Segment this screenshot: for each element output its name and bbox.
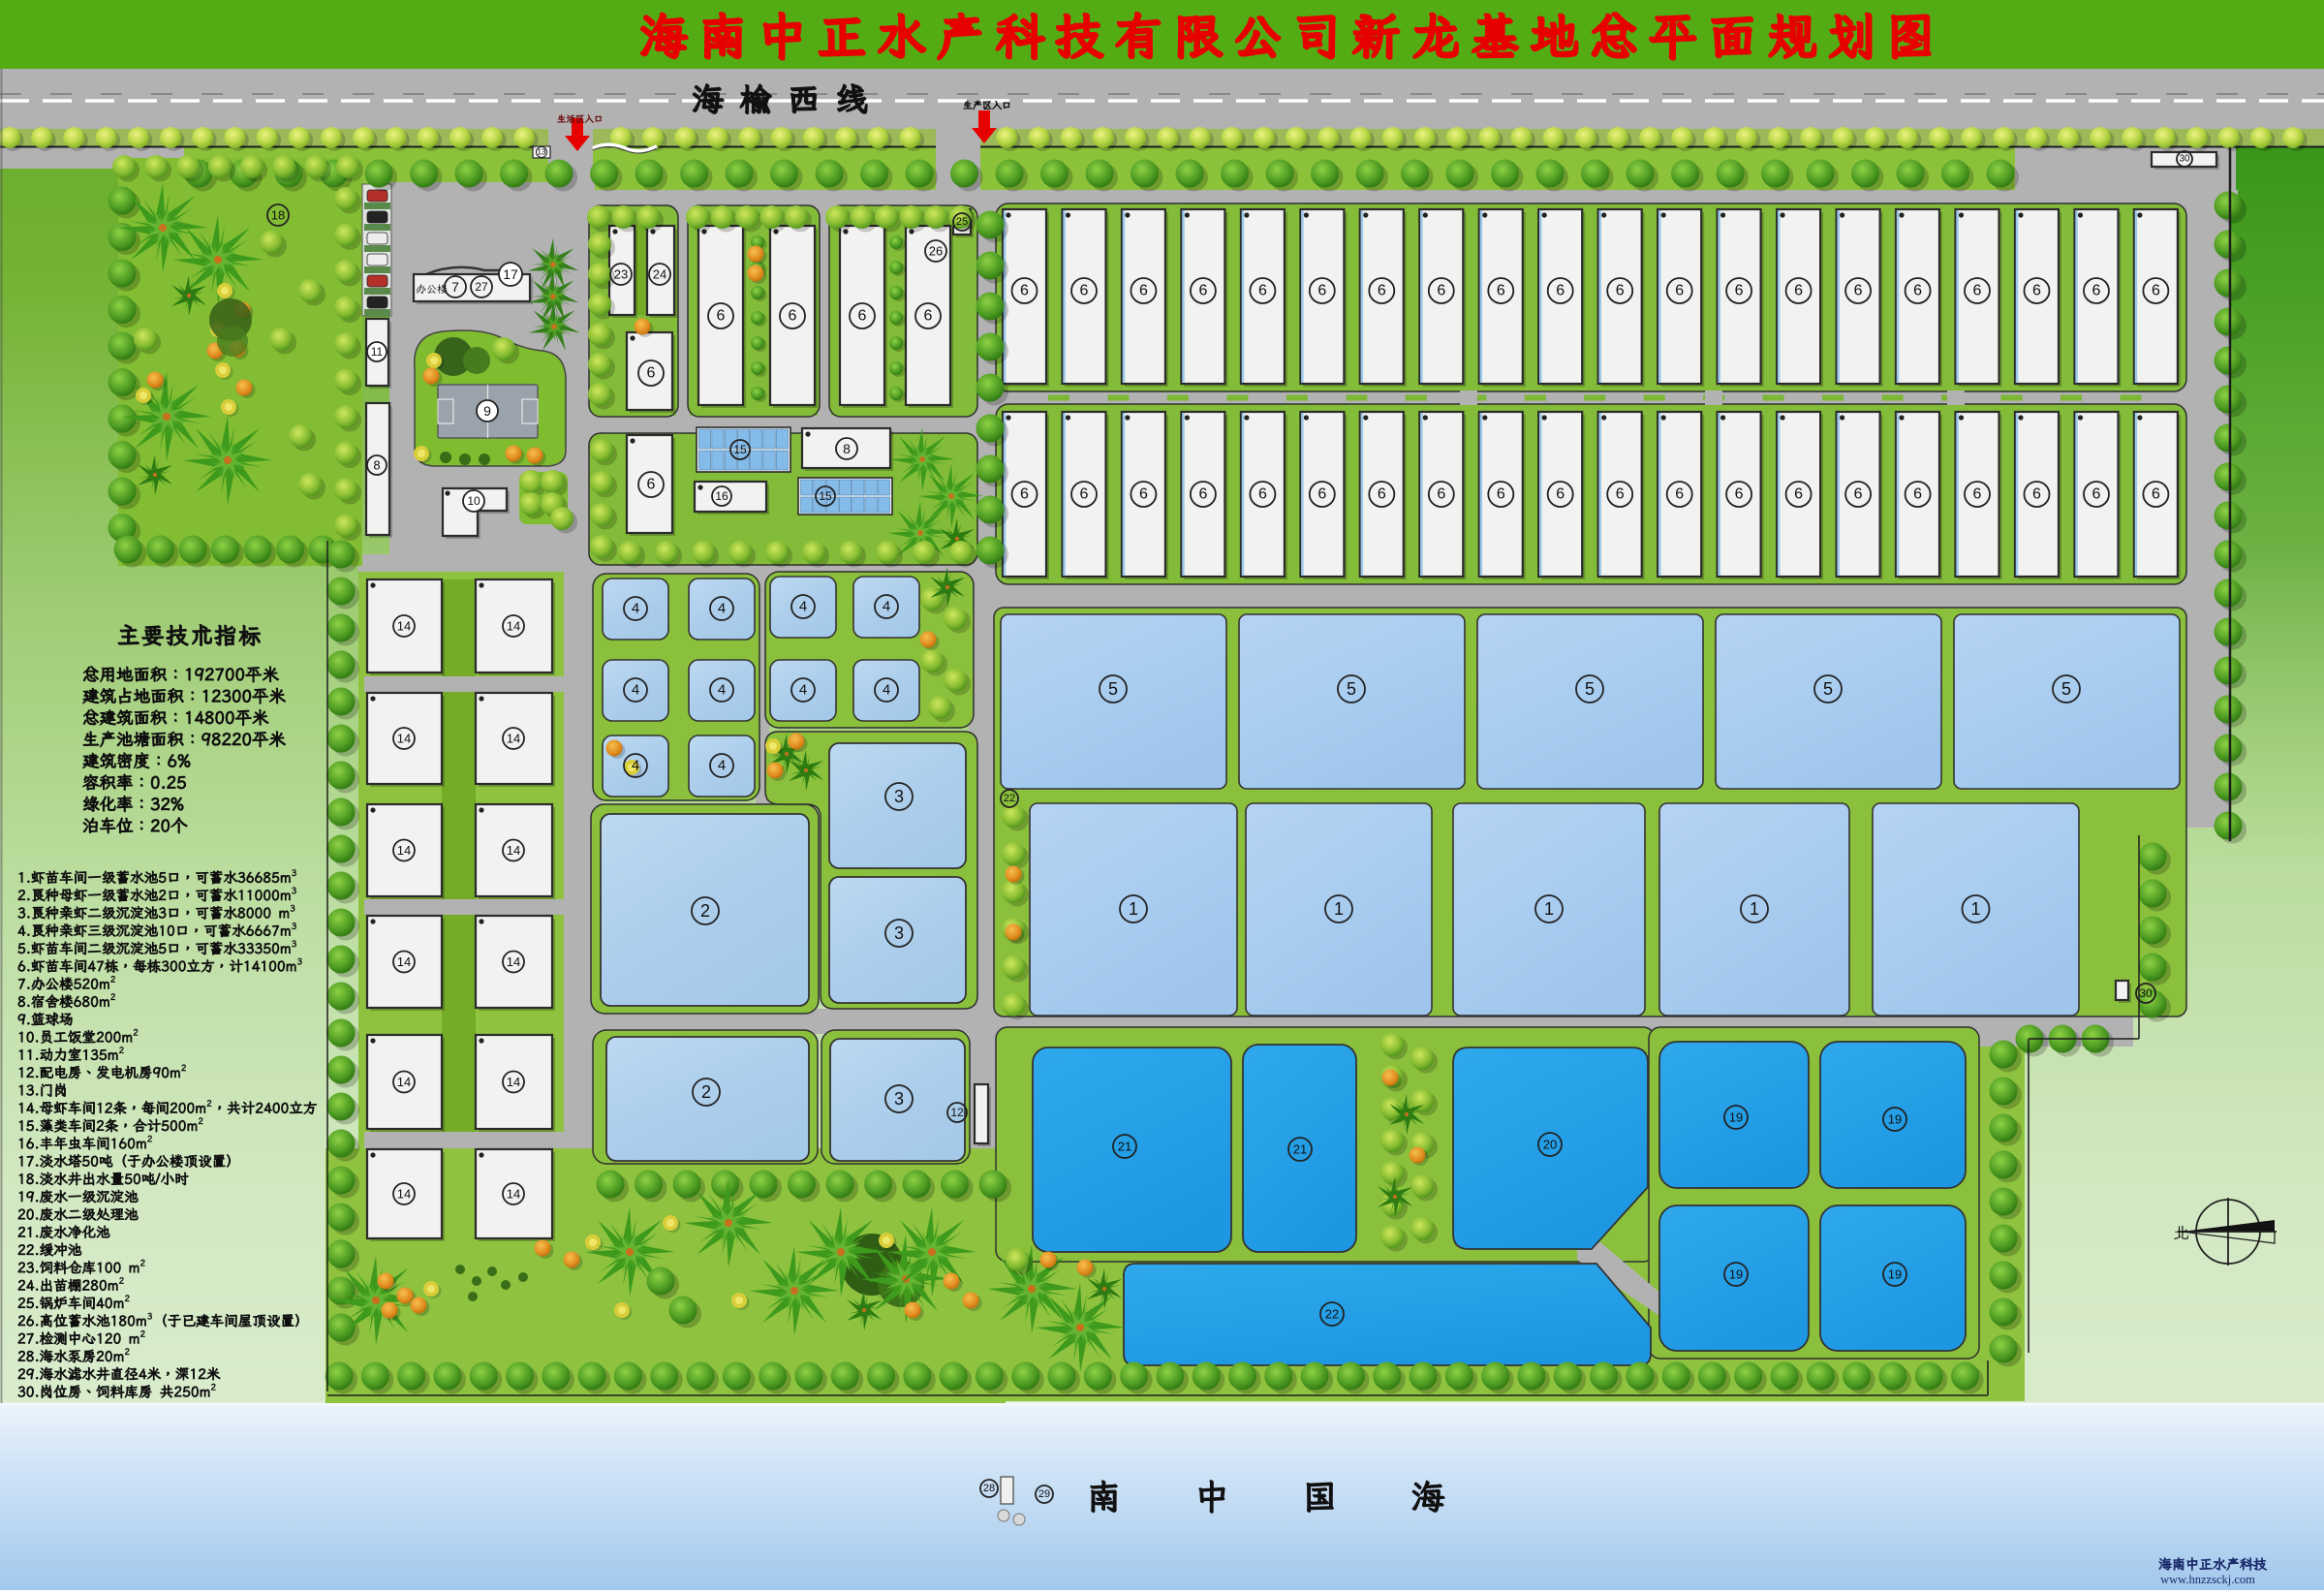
svg-text:6: 6 — [1556, 283, 1565, 299]
svg-text:2: 2 — [700, 901, 710, 921]
svg-text:19: 19 — [1888, 1267, 1902, 1282]
svg-text:6: 6 — [647, 365, 656, 382]
svg-text:6: 6 — [1735, 283, 1744, 299]
svg-text:19: 19 — [1729, 1110, 1743, 1125]
svg-text:5: 5 — [1347, 679, 1356, 699]
svg-text:4: 4 — [883, 599, 890, 615]
svg-text:6: 6 — [1556, 486, 1565, 503]
svg-text:2: 2 — [701, 1082, 711, 1102]
svg-text:22: 22 — [1004, 793, 1015, 804]
svg-text:6: 6 — [1378, 486, 1386, 503]
svg-text:6: 6 — [2152, 283, 2160, 299]
svg-text:14: 14 — [397, 843, 411, 858]
svg-text:6: 6 — [1437, 283, 1445, 299]
svg-text:14: 14 — [507, 619, 520, 634]
svg-text:4: 4 — [799, 599, 807, 615]
svg-text:6: 6 — [2152, 486, 2160, 503]
svg-text:14: 14 — [397, 732, 411, 746]
svg-text:3: 3 — [894, 787, 904, 806]
svg-text:4: 4 — [718, 758, 726, 774]
svg-text:14: 14 — [397, 1075, 411, 1089]
svg-text:www.hnzzsckj.com: www.hnzzsckj.com — [2160, 1573, 2255, 1586]
svg-text:6: 6 — [1317, 283, 1326, 299]
svg-text:12: 12 — [950, 1106, 964, 1119]
svg-text:25: 25 — [956, 216, 968, 228]
svg-text:3: 3 — [894, 1089, 904, 1109]
svg-text:18: 18 — [271, 208, 285, 223]
svg-text:29: 29 — [1038, 1488, 1050, 1500]
svg-text:15: 15 — [819, 489, 832, 503]
svg-text:6: 6 — [1198, 283, 1207, 299]
svg-text:6: 6 — [1854, 486, 1863, 503]
svg-text:1: 1 — [1334, 899, 1344, 919]
svg-text:14: 14 — [507, 843, 520, 858]
svg-text:26: 26 — [929, 244, 943, 259]
svg-text:6: 6 — [1794, 283, 1803, 299]
svg-text:6: 6 — [1854, 283, 1863, 299]
svg-text:6: 6 — [1198, 486, 1207, 503]
svg-text:6: 6 — [1497, 486, 1505, 503]
svg-text:6: 6 — [2032, 283, 2041, 299]
svg-text:13: 13 — [538, 148, 546, 157]
svg-text:4: 4 — [718, 601, 726, 617]
svg-text:6: 6 — [924, 308, 933, 325]
svg-text:8: 8 — [373, 458, 380, 473]
svg-text:4: 4 — [718, 682, 726, 699]
svg-text:6: 6 — [1913, 283, 1922, 299]
svg-text:11: 11 — [371, 345, 384, 359]
svg-text:1: 1 — [1544, 899, 1554, 919]
svg-text:6: 6 — [1317, 486, 1326, 503]
svg-text:30: 30 — [2179, 154, 2190, 165]
svg-text:6: 6 — [2092, 283, 2101, 299]
svg-text:6: 6 — [1675, 283, 1684, 299]
svg-text:23: 23 — [614, 267, 628, 282]
svg-text:21: 21 — [1293, 1142, 1307, 1157]
svg-text:6: 6 — [1616, 486, 1625, 503]
svg-text:6: 6 — [1616, 283, 1625, 299]
svg-text:14: 14 — [397, 619, 411, 634]
svg-text:6: 6 — [1973, 486, 1982, 503]
svg-text:5: 5 — [1823, 679, 1833, 699]
svg-text:9: 9 — [483, 403, 491, 419]
svg-text:6: 6 — [2032, 486, 2041, 503]
svg-text:22: 22 — [1325, 1307, 1339, 1322]
svg-text:1: 1 — [1750, 899, 1759, 919]
svg-text:21: 21 — [1118, 1140, 1131, 1154]
svg-text:1: 1 — [1970, 899, 1980, 919]
svg-text:6: 6 — [1913, 486, 1922, 503]
svg-text:6: 6 — [1735, 486, 1744, 503]
svg-text:3: 3 — [894, 923, 904, 943]
svg-text:16: 16 — [715, 489, 728, 503]
svg-text:6: 6 — [1675, 486, 1684, 503]
svg-text:5: 5 — [2061, 679, 2071, 699]
svg-text:1: 1 — [1129, 899, 1138, 919]
svg-text:4: 4 — [883, 682, 890, 699]
svg-text:5: 5 — [1108, 679, 1118, 699]
svg-text:6: 6 — [717, 308, 726, 325]
svg-text:14: 14 — [397, 954, 411, 969]
svg-text:24: 24 — [653, 267, 666, 282]
svg-text:4: 4 — [632, 682, 639, 699]
svg-text:14: 14 — [397, 1187, 411, 1202]
svg-text:4: 4 — [632, 601, 639, 617]
svg-text:6: 6 — [789, 308, 797, 325]
svg-text:28: 28 — [983, 1483, 995, 1494]
svg-text:14: 14 — [507, 1075, 520, 1089]
svg-text:14: 14 — [507, 954, 520, 969]
svg-text:6: 6 — [1020, 486, 1029, 503]
svg-text:6: 6 — [1258, 283, 1267, 299]
svg-text:6: 6 — [1020, 283, 1029, 299]
svg-text:19: 19 — [1888, 1112, 1902, 1127]
svg-text:8: 8 — [843, 441, 851, 456]
svg-text:14: 14 — [507, 732, 520, 746]
svg-text:6: 6 — [1794, 486, 1803, 503]
svg-text:4: 4 — [799, 682, 807, 699]
svg-text:6: 6 — [1080, 486, 1089, 503]
svg-text:15: 15 — [733, 443, 747, 456]
svg-text:7: 7 — [451, 279, 459, 295]
svg-text:6: 6 — [1139, 283, 1148, 299]
svg-text:17: 17 — [503, 266, 518, 282]
svg-text:6: 6 — [1497, 283, 1505, 299]
svg-text:4: 4 — [632, 758, 639, 774]
svg-text:20: 20 — [1543, 1138, 1557, 1152]
svg-text:10: 10 — [467, 494, 480, 508]
svg-text:6: 6 — [1973, 283, 1982, 299]
svg-text:6: 6 — [2092, 486, 2101, 503]
svg-text:14: 14 — [507, 1187, 520, 1202]
svg-text:30: 30 — [2139, 986, 2153, 1000]
svg-text:6: 6 — [1080, 283, 1089, 299]
svg-text:6: 6 — [647, 477, 656, 493]
svg-text:5: 5 — [1585, 679, 1595, 699]
svg-text:6: 6 — [858, 308, 867, 325]
svg-text:27: 27 — [475, 280, 488, 294]
svg-text:6: 6 — [1139, 486, 1148, 503]
svg-text:6: 6 — [1258, 486, 1267, 503]
svg-text:19: 19 — [1729, 1267, 1743, 1282]
svg-text:6: 6 — [1437, 486, 1445, 503]
svg-text:6: 6 — [1378, 283, 1386, 299]
